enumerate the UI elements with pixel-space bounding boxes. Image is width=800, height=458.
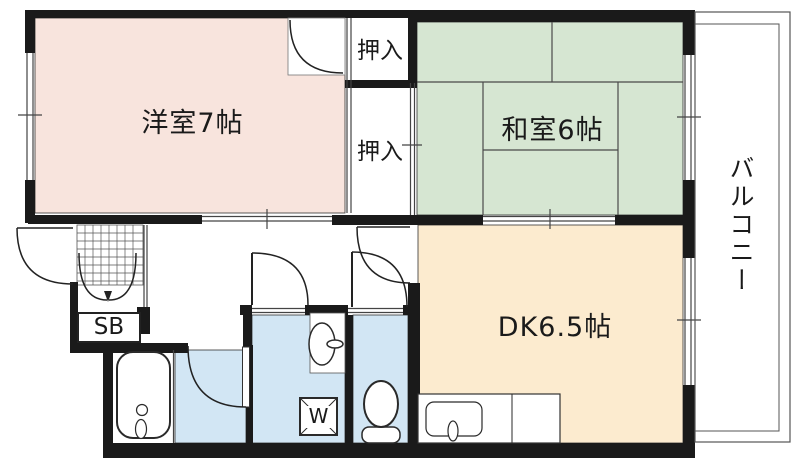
western-room-label: 洋室7帖 <box>110 101 275 140</box>
bathtub <box>117 352 170 439</box>
japanese-room-label: 和室6帖 <box>470 108 635 147</box>
western-room-door <box>288 18 345 75</box>
shoe-box-label: SB <box>79 314 139 340</box>
toilet <box>362 381 400 443</box>
kitchen-faucet <box>448 421 458 441</box>
closet-upper-label: 押入 <box>350 31 410 65</box>
entrance-door <box>17 228 73 284</box>
entrance-step-line <box>144 225 147 307</box>
kitchen-counter <box>418 394 560 443</box>
toilet-door <box>352 252 407 307</box>
balcony-label: バルコニー <box>722 135 758 315</box>
dining-kitchen-label: DK6.5帖 <box>465 305 645 344</box>
dk-door <box>357 227 410 283</box>
floor-plan: 洋室7帖 和室6帖 DK6.5帖 押入 押入 SB W バルコニー <box>0 0 800 458</box>
washing-machine-label: W <box>300 404 337 428</box>
changing-room-floor <box>175 350 246 443</box>
washroom-door <box>252 253 308 305</box>
closet-lower-label: 押入 <box>350 132 410 166</box>
wash-basin <box>309 313 345 373</box>
floor-plan-drawing <box>0 0 800 458</box>
